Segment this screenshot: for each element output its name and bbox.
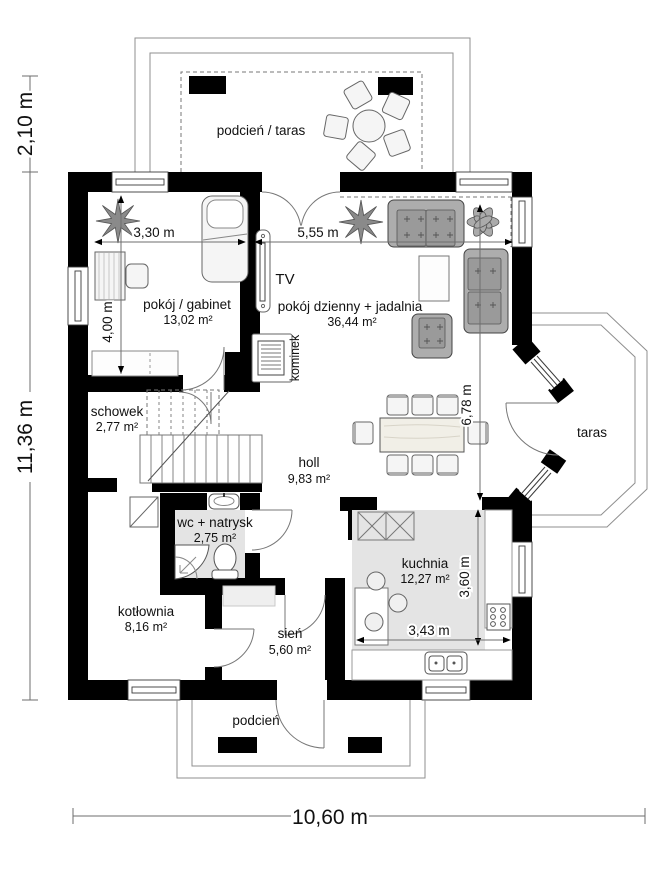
label-holl-name: holl [298, 455, 319, 470]
dim-gabinet-depth: 4,00 m [100, 301, 115, 342]
bay-window [531, 356, 560, 388]
staircase [140, 390, 262, 483]
label-taras-boczny: taras [577, 425, 607, 440]
porch-column [348, 737, 382, 753]
label-kotlownia-name: kotłownia [118, 604, 175, 619]
label-wc-area: 2,75 m² [194, 531, 236, 545]
label-schowek-area: 2,77 m² [96, 420, 138, 434]
toilet [212, 544, 238, 579]
kitchen [352, 510, 512, 680]
stove [487, 604, 510, 630]
window [68, 267, 88, 325]
kotlownia-door [214, 629, 254, 667]
label-gabinet-area: 13,02 m² [163, 313, 212, 327]
bay-terrace-door [506, 403, 558, 455]
window [512, 197, 532, 247]
stool [389, 594, 407, 612]
dim-house-width: 10,60 m [292, 806, 368, 829]
label-kotlownia-area: 8,16 m² [125, 620, 167, 634]
dining-table [380, 418, 464, 452]
label-kominek: kominek [288, 334, 302, 381]
label-podcien-dolny: podcień [232, 713, 279, 728]
terrace-right [532, 313, 647, 527]
dim-gabinet-width: 3,30 m [133, 225, 174, 240]
gabinet-furniture [92, 196, 248, 376]
label-schowek-name: schowek [91, 404, 144, 419]
floor-plan-page: podcień / taras pokój / gabinet 13,02 m²… [0, 0, 660, 877]
coffee-table [419, 256, 449, 301]
sofa-vertical [464, 249, 508, 333]
dim-kuchnia-width: 3,43 m [408, 623, 449, 638]
sofa-horizontal [388, 200, 464, 247]
salon-furniture [339, 197, 511, 475]
window [112, 172, 168, 192]
terrace-top [135, 38, 470, 172]
sien-room [223, 586, 275, 606]
label-salon-area: 36,44 m² [327, 315, 376, 329]
sink [209, 493, 239, 509]
label-sien-name: sień [278, 626, 303, 641]
label-tv: TV [275, 271, 294, 288]
dim-salon-width: 5,55 m [297, 225, 338, 240]
floor-plan-svg: podcień / taras pokój / gabinet 13,02 m²… [0, 0, 660, 877]
label-holl-area: 9,83 m² [288, 472, 330, 486]
plant [339, 200, 383, 244]
wardrobe [92, 351, 178, 376]
terrace-column [378, 77, 413, 95]
stool [365, 613, 383, 631]
kotlownia-room [130, 497, 158, 527]
wc-door [252, 510, 292, 550]
window [456, 172, 512, 192]
dim-taras-depth: 2,10 m [14, 92, 37, 156]
label-kuchnia-area: 12,27 m² [400, 572, 449, 586]
fireplace [252, 334, 292, 382]
label-sien-area: 5,60 m² [269, 643, 311, 657]
gabinet-door [181, 347, 224, 390]
front-door [276, 700, 324, 748]
label-kuchnia-name: kuchnia [402, 556, 449, 571]
kitchen-sink [425, 652, 467, 674]
label-salon-name: pokój dzienny + jadalnia [278, 299, 423, 314]
label-wc-name: wc + natrysk [176, 515, 253, 530]
washing-machine [130, 497, 158, 527]
stool [367, 572, 385, 590]
window [512, 542, 532, 597]
porch-column [218, 737, 257, 753]
desk-chair [126, 264, 148, 288]
terrace-column [189, 76, 226, 94]
dim-house-depth: 11,36 m [14, 400, 37, 474]
bed [202, 196, 248, 282]
dim-salon-depth: 6,78 m [459, 384, 474, 425]
doormat [223, 586, 275, 606]
plant [467, 205, 499, 239]
bay-window [522, 467, 551, 499]
label-taras-gorny: podcień / taras [217, 123, 306, 138]
window [128, 680, 180, 700]
label-gabinet-name: pokój / gabinet [143, 297, 231, 312]
porch-bottom [177, 700, 425, 778]
dim-kuchnia-depth: 3,60 m [457, 556, 472, 597]
window [422, 680, 470, 700]
armchair [412, 314, 452, 358]
